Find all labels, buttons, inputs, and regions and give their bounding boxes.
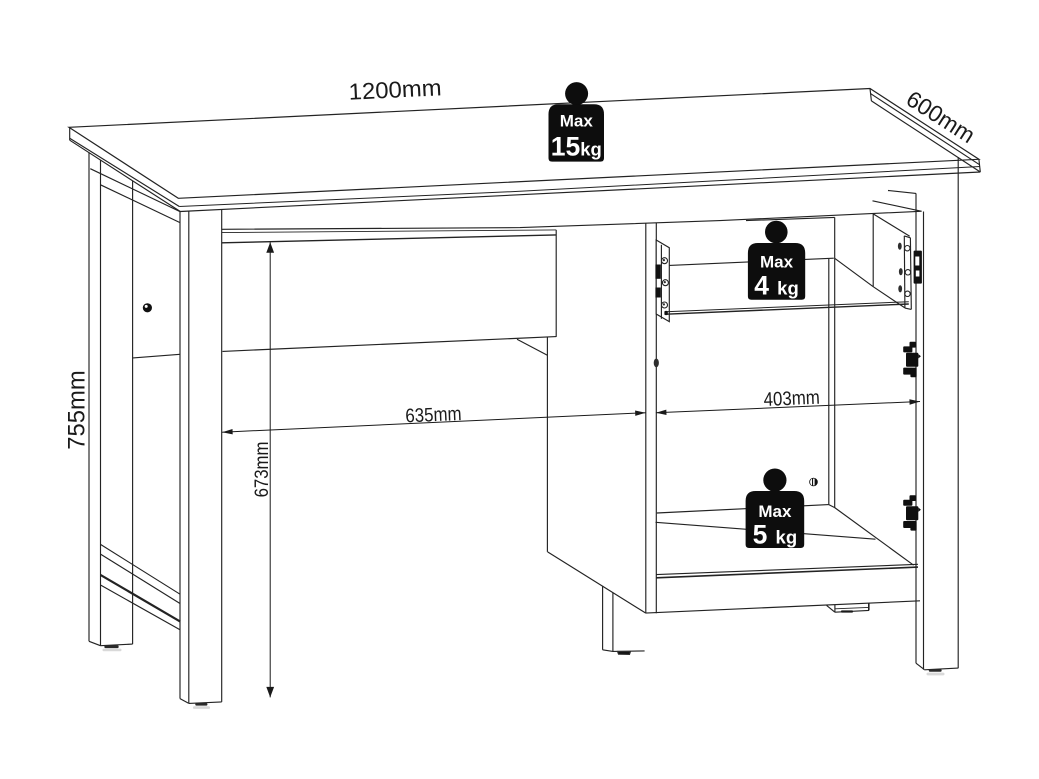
svg-text:403mm: 403mm	[763, 387, 820, 411]
svg-text:755mm: 755mm	[63, 370, 90, 450]
svg-text:Max: Max	[758, 502, 792, 521]
svg-text:673mm: 673mm	[251, 442, 273, 498]
svg-text:Max: Max	[560, 112, 594, 131]
svg-text:635mm: 635mm	[405, 403, 462, 427]
svg-text:1200mm: 1200mm	[348, 74, 442, 105]
svg-text:Max: Max	[760, 252, 794, 271]
